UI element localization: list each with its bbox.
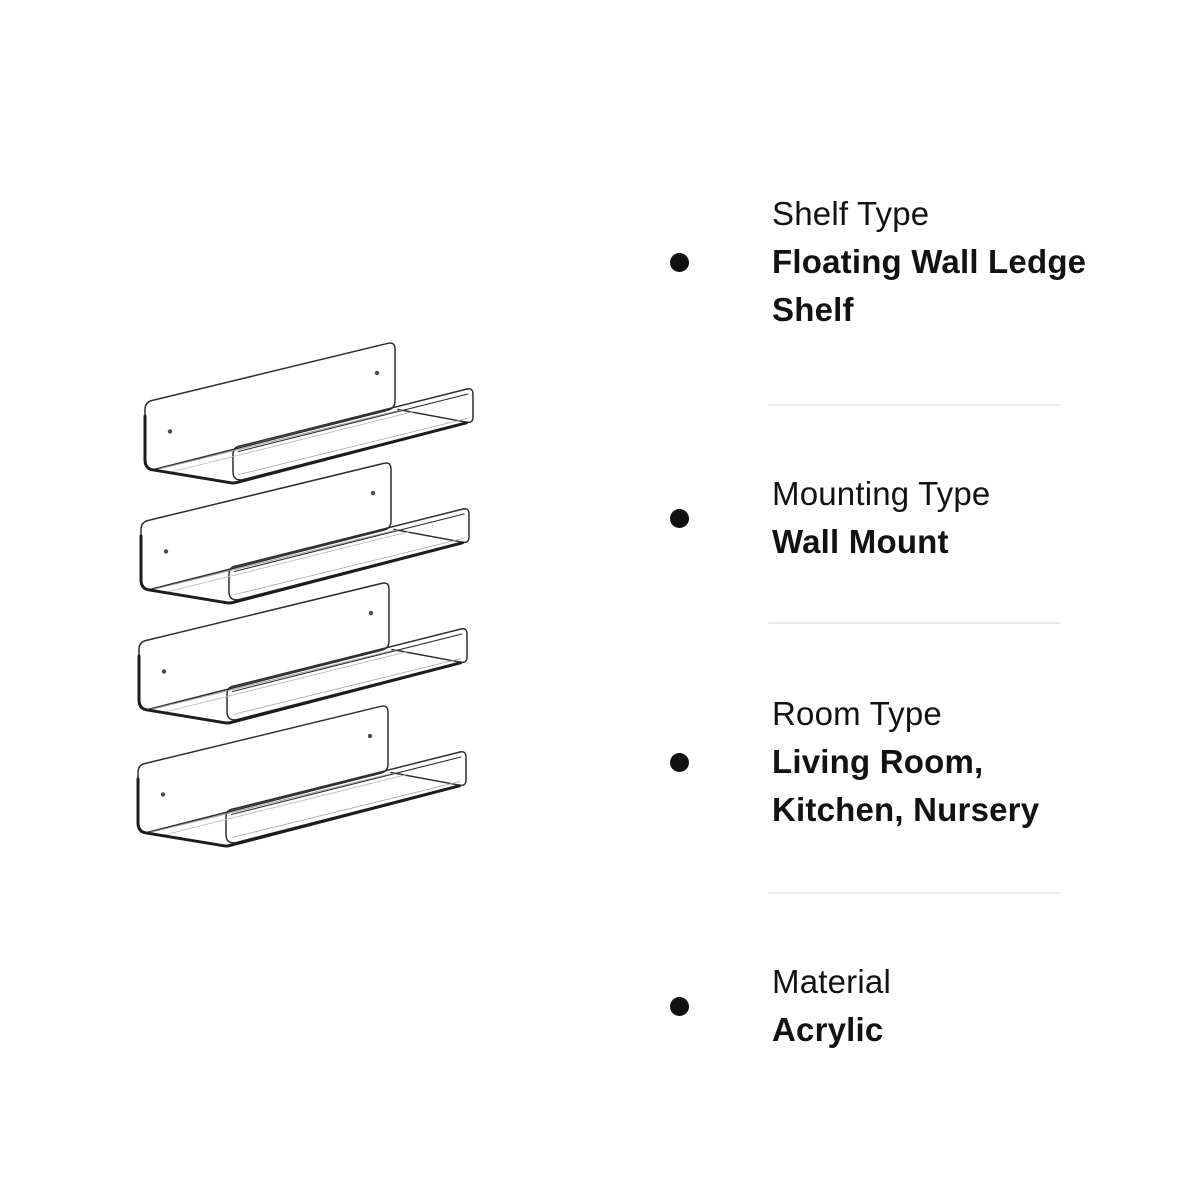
feature-value: Living Room, Kitchen, Nursery	[772, 738, 1039, 834]
feature-value: Wall Mount	[772, 518, 990, 566]
shelf-drawing-3	[139, 583, 467, 723]
bullet-icon	[670, 253, 689, 272]
section-divider	[768, 622, 1060, 624]
bullet-icon	[670, 753, 689, 772]
shelf-drawing-2	[141, 463, 469, 603]
feature-label: Shelf Type	[772, 190, 1086, 238]
shelf-drawing-1	[145, 343, 473, 483]
feature-label: Mounting Type	[772, 470, 990, 518]
section-divider	[768, 404, 1060, 406]
feature-shelf-type: Shelf Type Floating Wall Ledge Shelf	[670, 190, 1140, 334]
feature-material: Material Acrylic	[670, 958, 1140, 1054]
feature-value: Floating Wall Ledge Shelf	[772, 238, 1086, 334]
section-divider	[768, 892, 1060, 894]
bullet-icon	[670, 509, 689, 528]
feature-label: Room Type	[772, 690, 1039, 738]
feature-mounting-type: Mounting Type Wall Mount	[670, 470, 1140, 566]
feature-value: Acrylic	[772, 1006, 891, 1054]
feature-label: Material	[772, 958, 891, 1006]
shelf-drawing-4	[138, 706, 466, 846]
feature-room-type: Room Type Living Room, Kitchen, Nursery	[670, 690, 1140, 834]
bullet-icon	[670, 997, 689, 1016]
product-infographic: Shelf Type Floating Wall Ledge Shelf Mou…	[0, 0, 1200, 1200]
